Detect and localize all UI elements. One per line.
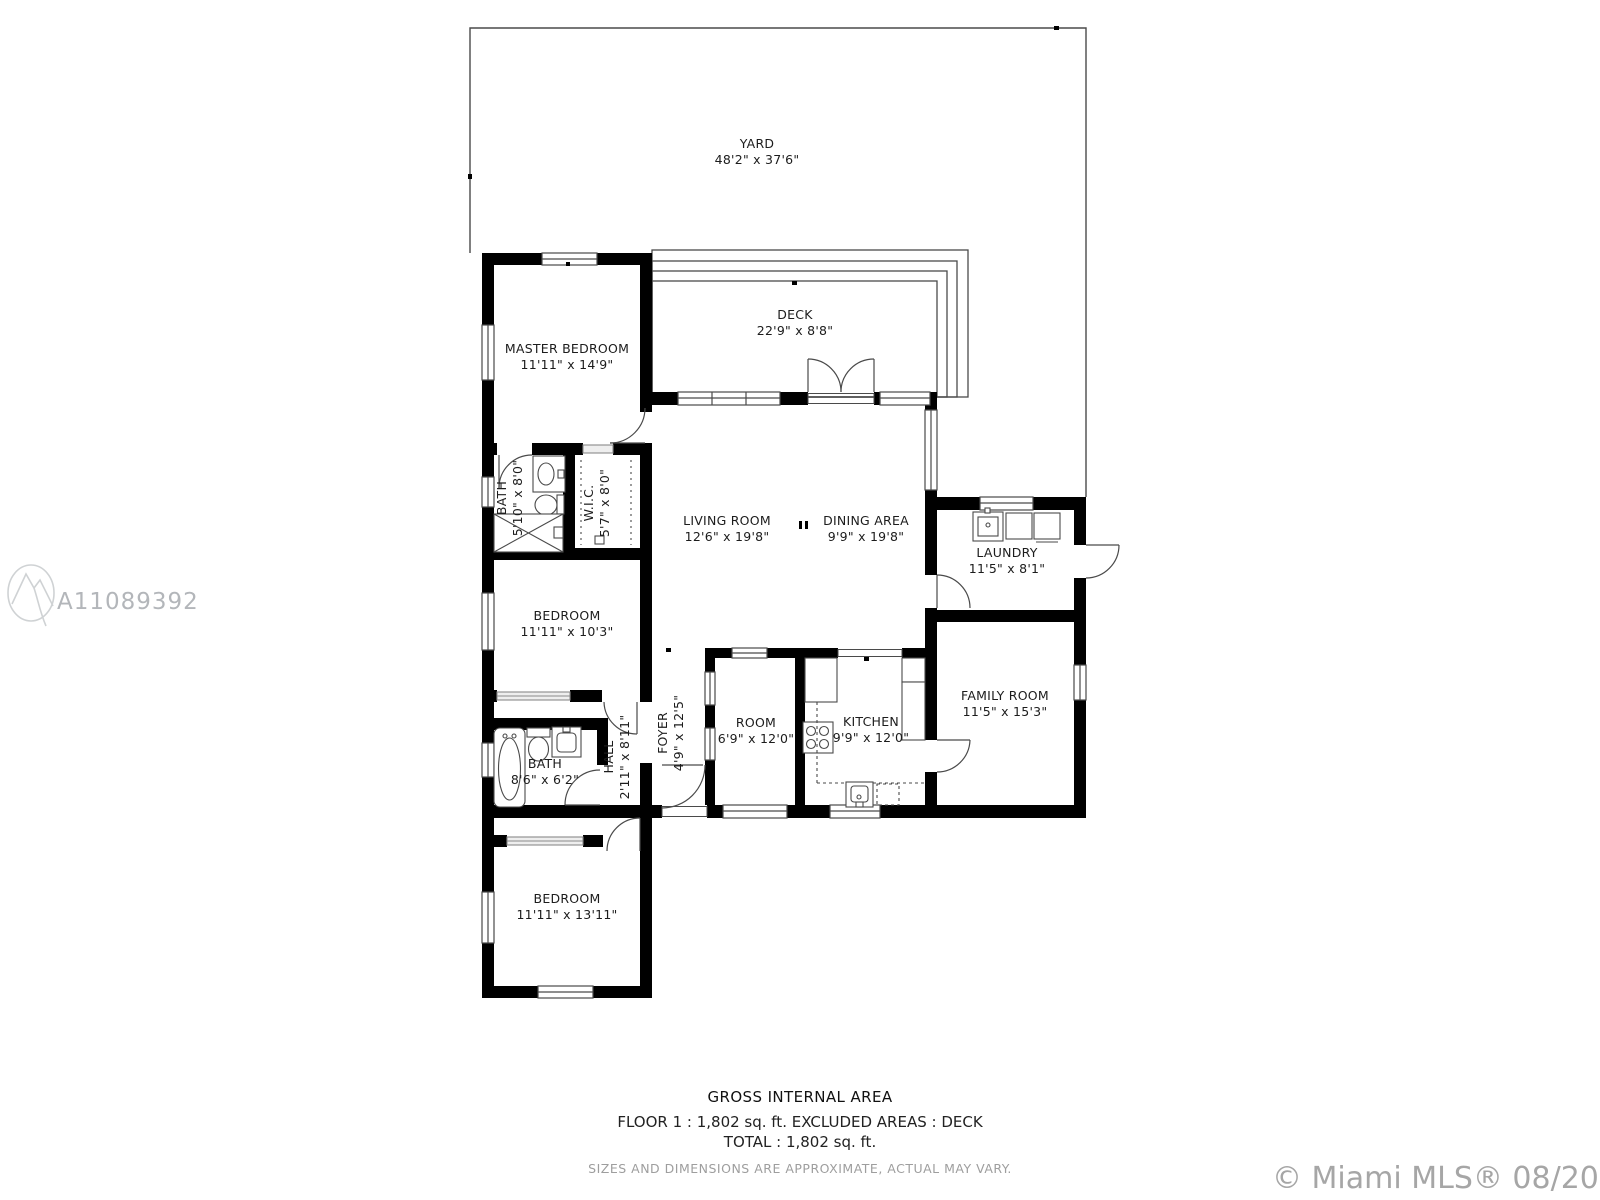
room-dims: 11'5" x 15'3" — [961, 704, 1049, 720]
mls-logo-icon — [4, 560, 60, 628]
room-name: FAMILY ROOM — [961, 688, 1049, 704]
gross-internal-area-title: GROSS INTERNAL AREA — [708, 1088, 893, 1106]
room-name: FOYER — [655, 695, 671, 771]
room-label-bedroom-2: BEDROOM 11'11" x 13'11" — [516, 891, 617, 924]
room-label-master-bedroom: MASTER BEDROOM 11'11" x 14'9" — [505, 341, 629, 374]
room-dims: 5'7" x 8'0" — [597, 469, 613, 537]
room-dims: 22'9" x 8'8" — [757, 323, 833, 339]
room-dims: 2'11" x 8'11" — [617, 715, 633, 800]
room-label-wic: W.I.C. 5'7" x 8'0" — [581, 469, 614, 537]
room-dims: 11'5" x 8'1" — [969, 561, 1045, 577]
cased-openings — [662, 394, 902, 817]
room-dims: 8'6" x 6'2" — [511, 772, 579, 788]
room-name: BEDROOM — [521, 608, 614, 624]
room-label-kitchen: KITCHEN 9'9" x 12'0" — [833, 714, 909, 747]
room-name: BATH — [494, 460, 510, 536]
room-name: ROOM — [718, 715, 794, 731]
room-label-laundry: LAUNDRY 11'5" x 8'1" — [969, 545, 1045, 578]
mls-id-watermark: A11089392 — [57, 589, 199, 615]
room-dims: 48'2" x 37'6" — [715, 152, 800, 168]
room-label-hall: HALL 2'11" x 8'11" — [601, 715, 634, 800]
room-name: W.I.C. — [581, 469, 597, 537]
room-label-foyer: FOYER 4'9" x 12'5" — [655, 695, 688, 771]
floor-area-line: FLOOR 1 : 1,802 sq. ft. EXCLUDED AREAS :… — [617, 1113, 982, 1131]
room-dims: 11'11" x 13'11" — [516, 907, 617, 923]
room-dims: 9'9" x 12'0" — [833, 730, 909, 746]
room-name: LIVING ROOM — [683, 513, 771, 529]
mls-copyright-stamp: © Miami MLS® 08/2021 — [1272, 1161, 1600, 1196]
floorplan-drawing — [0, 0, 1600, 1200]
room-dims: 6'9" x 12'0" — [718, 731, 794, 747]
room-dims: 4'9" x 12'5" — [671, 695, 687, 771]
room-label-yard: YARD 48'2" x 37'6" — [715, 136, 800, 169]
room-label-bedroom-1: BEDROOM 11'11" x 10'3" — [521, 608, 614, 641]
room-label-bath-1: BATH 5'10" x 8'0" — [494, 460, 527, 536]
room-label-room: ROOM 6'9" x 12'0" — [718, 715, 794, 748]
room-label-living-room: LIVING ROOM 12'6" x 19'8" — [683, 513, 771, 546]
room-label-family-room: FAMILY ROOM 11'5" x 15'3" — [961, 688, 1049, 721]
room-label-dining-area: DINING AREA 9'9" x 19'8" — [823, 513, 909, 546]
room-dims: 12'6" x 19'8" — [683, 529, 771, 545]
floorplan-page: YARD 48'2" x 37'6" DECK 22'9" x 8'8" MAS… — [0, 0, 1600, 1200]
room-name: DINING AREA — [823, 513, 909, 529]
total-area-line: TOTAL : 1,802 sq. ft. — [724, 1133, 876, 1151]
room-dims: 11'11" x 10'3" — [521, 624, 614, 640]
room-dims: 5'10" x 8'0" — [510, 460, 526, 536]
room-dims: 9'9" x 19'8" — [823, 529, 909, 545]
room-name: YARD — [715, 136, 800, 152]
room-label-bath-2: BATH 8'6" x 6'2" — [511, 756, 579, 789]
room-name: MASTER BEDROOM — [505, 341, 629, 357]
room-name: BATH — [511, 756, 579, 772]
room-dims: 11'11" x 14'9" — [505, 357, 629, 373]
room-name: KITCHEN — [833, 714, 909, 730]
door-swings — [499, 359, 1119, 851]
room-name: DECK — [757, 307, 833, 323]
room-label-deck: DECK 22'9" x 8'8" — [757, 307, 833, 340]
room-name: LAUNDRY — [969, 545, 1045, 561]
room-name: HALL — [601, 715, 617, 800]
laundry-fixtures — [973, 508, 1060, 542]
disclaimer-text: SIZES AND DIMENSIONS ARE APPROXIMATE, AC… — [588, 1161, 1012, 1176]
room-name: BEDROOM — [516, 891, 617, 907]
